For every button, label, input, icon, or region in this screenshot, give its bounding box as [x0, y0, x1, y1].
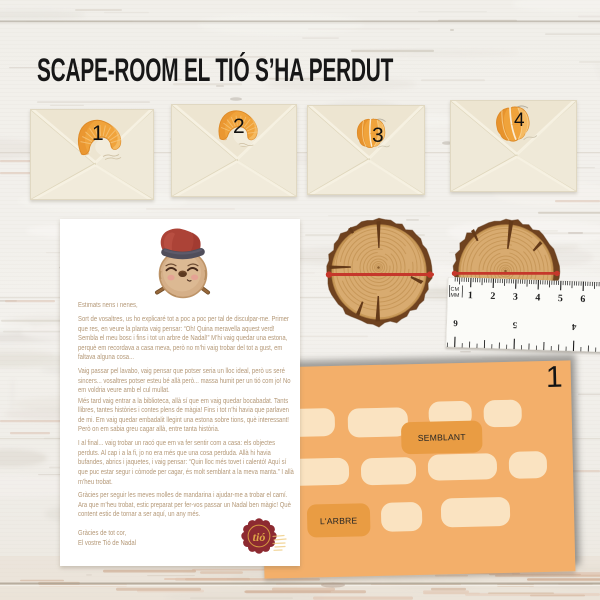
svg-text:6: 6: [580, 293, 585, 304]
svg-text:6: 6: [453, 318, 458, 328]
svg-text:2: 2: [490, 290, 495, 301]
svg-text:4: 4: [535, 292, 540, 303]
svg-text:5: 5: [558, 293, 563, 304]
svg-text:5: 5: [512, 320, 517, 330]
svg-text:CM: CM: [450, 286, 459, 292]
svg-text:1: 1: [468, 290, 473, 301]
svg-text:3: 3: [513, 291, 518, 302]
svg-text:MM: MM: [450, 292, 460, 298]
svg-text:4: 4: [571, 322, 576, 332]
svg-text:tió: tió: [253, 530, 266, 544]
